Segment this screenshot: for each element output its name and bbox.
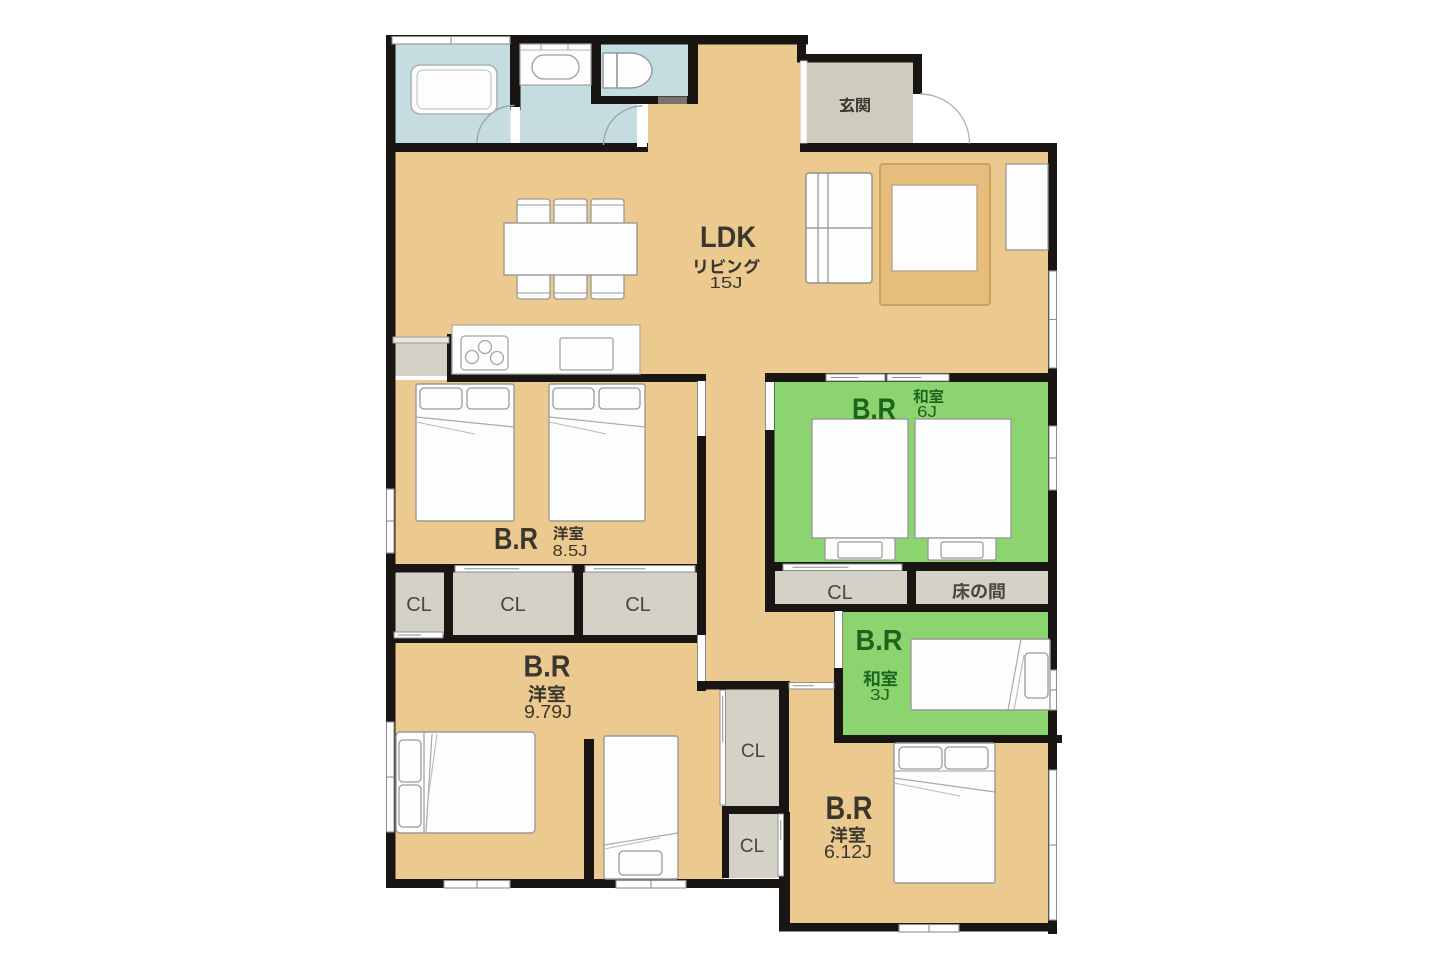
svg-text:B.R: B.R (494, 521, 538, 556)
svg-text:3J: 3J (870, 687, 890, 704)
svg-text:6.12J: 6.12J (824, 842, 872, 862)
svg-text:CL: CL (740, 836, 764, 857)
svg-text:CL: CL (406, 594, 432, 616)
svg-text:CL: CL (500, 594, 526, 616)
svg-text:15J: 15J (710, 275, 743, 292)
svg-text:LDK: LDK (700, 221, 756, 254)
svg-text:B.R: B.R (826, 790, 873, 826)
svg-text:CL: CL (827, 582, 853, 604)
svg-text:B.R: B.R (856, 625, 903, 657)
svg-text:9.79J: 9.79J (524, 702, 572, 722)
svg-text:6J: 6J (917, 404, 937, 421)
svg-text:B.R: B.R (524, 649, 571, 684)
svg-text:8.5J: 8.5J (553, 543, 588, 560)
svg-text:CL: CL (625, 594, 651, 616)
svg-text:B.R: B.R (852, 393, 896, 426)
svg-text:CL: CL (741, 741, 765, 762)
